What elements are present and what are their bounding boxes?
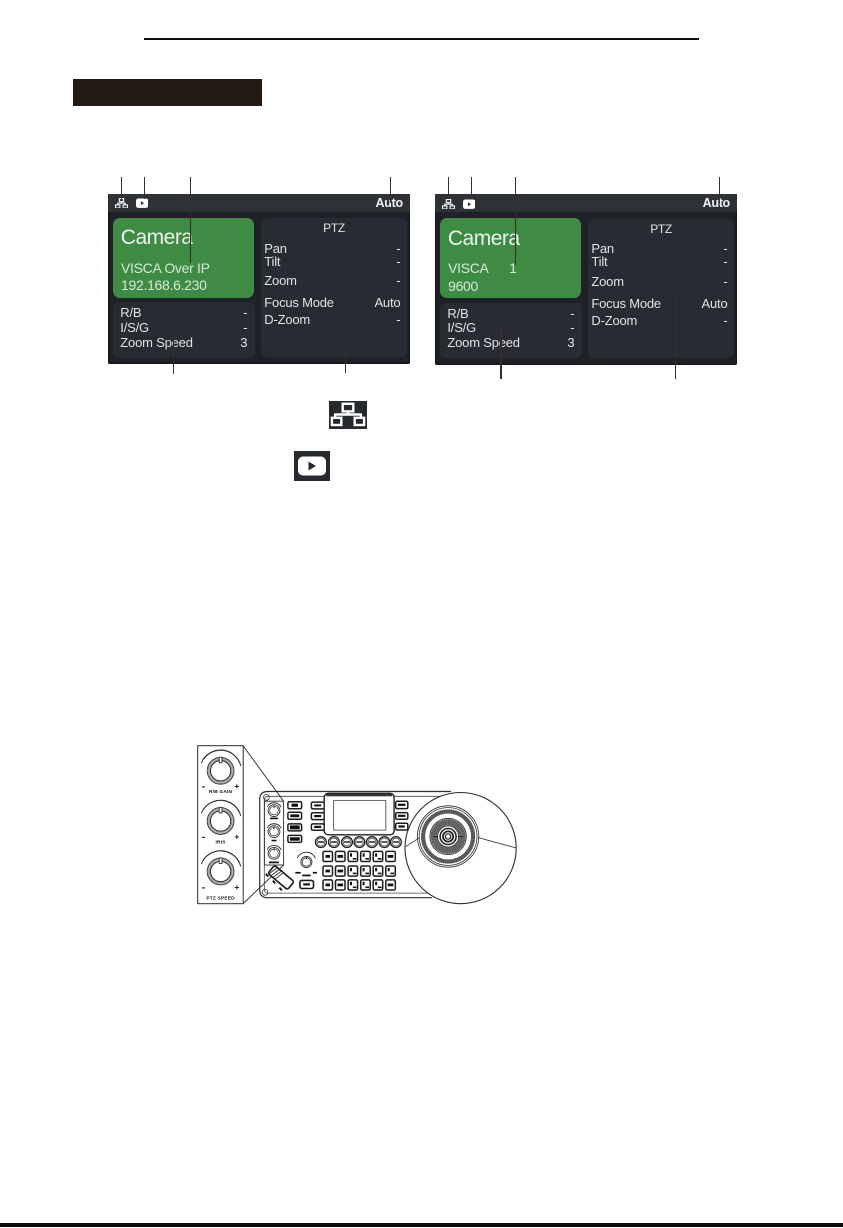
svg-text:-: - (202, 832, 205, 843)
svg-text:+: + (234, 831, 239, 841)
svg-text:+: + (234, 882, 239, 892)
svg-text:IRIS: IRIS (216, 839, 227, 845)
svg-text:-: - (202, 782, 205, 793)
svg-text:+: + (234, 781, 239, 791)
svg-text:R/B GAIN: R/B GAIN (209, 789, 233, 795)
svg-text:-: - (202, 882, 205, 893)
svg-text:PTZ SPEED: PTZ SPEED (206, 895, 235, 901)
